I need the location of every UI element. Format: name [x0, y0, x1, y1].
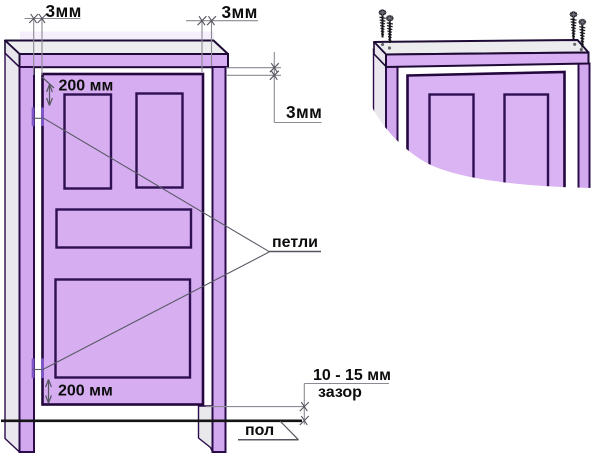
svg-text:зазор: зазор: [318, 384, 362, 401]
svg-text:3мм: 3мм: [46, 1, 82, 21]
svg-text:3мм: 3мм: [222, 2, 258, 22]
svg-text:10 - 15 мм: 10 - 15 мм: [313, 367, 391, 384]
svg-text:3мм: 3мм: [286, 102, 322, 122]
svg-text:петли: петли: [272, 234, 318, 251]
svg-text:200 мм: 200 мм: [58, 383, 113, 400]
svg-text:пол: пол: [245, 422, 274, 439]
svg-text:200 мм: 200 мм: [59, 78, 114, 95]
